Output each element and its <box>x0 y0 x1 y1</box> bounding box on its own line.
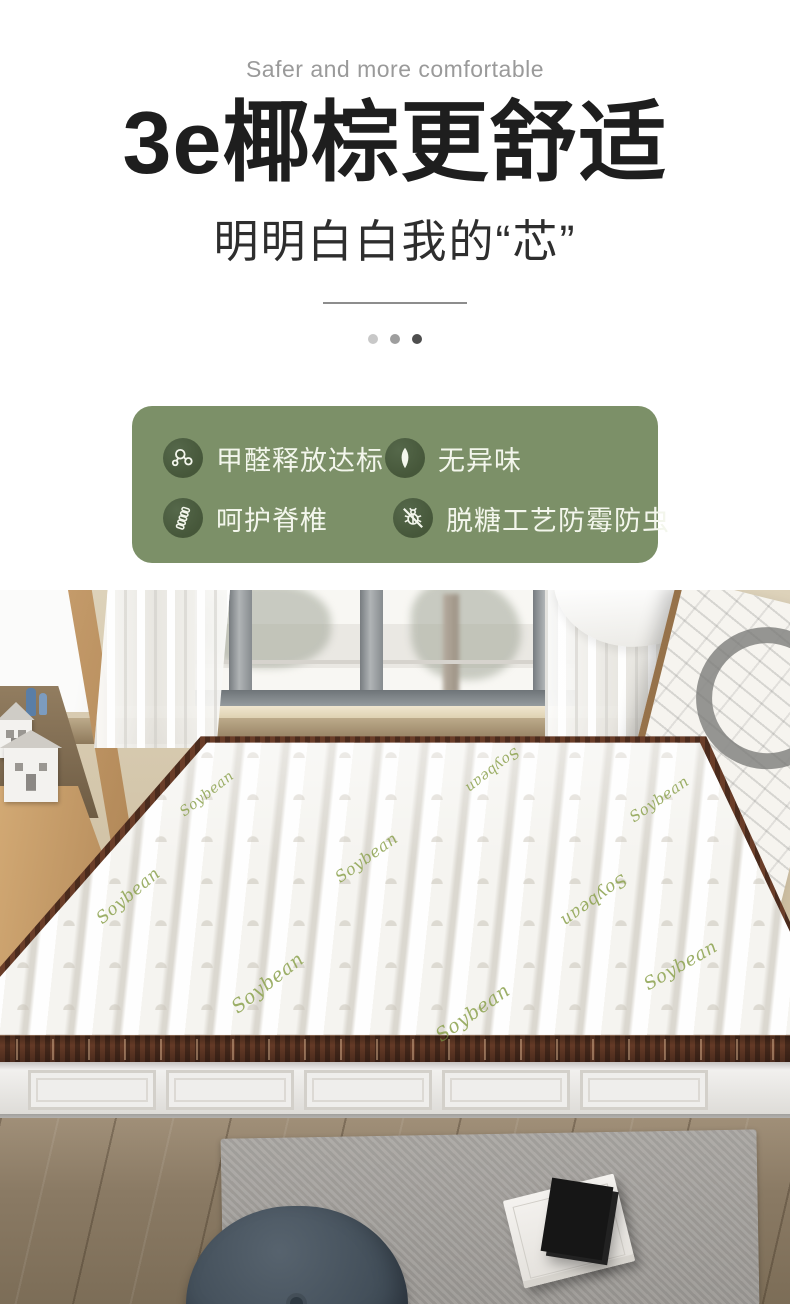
bed-storage-base <box>0 1062 790 1118</box>
feature-label: 无异味 <box>438 439 522 478</box>
window <box>195 590 575 708</box>
subtitle-english: Safer and more comfortable <box>0 0 790 83</box>
dot-1 <box>368 334 378 344</box>
window-frame-bar <box>360 590 383 692</box>
decor-bottle <box>26 688 36 716</box>
hero-section: Safer and more comfortable 3e椰棕更舒适 明明白白我… <box>0 0 790 344</box>
feature-label: 甲醛释放达标 <box>216 439 384 478</box>
product-detail-page: Safer and more comfortable 3e椰棕更舒适 明明白白我… <box>0 0 790 1304</box>
subtitle-chinese: 明明白白我的“芯” <box>0 205 790 270</box>
feature-item-spine-care: 呵护脊椎 <box>163 498 328 538</box>
tree-foliage <box>411 590 521 680</box>
no-insect-icon <box>393 498 433 538</box>
pagination-dots <box>0 334 790 344</box>
mattress-side-band <box>0 1035 790 1064</box>
spine-icon <box>163 498 203 538</box>
miniature-house <box>4 746 58 802</box>
tree-trunk <box>443 594 459 694</box>
page-title: 3e椰棕更舒适 <box>0 97 790 189</box>
curtain-left <box>94 590 230 748</box>
feature-label: 脱糖工艺防霉防虫 <box>446 499 670 538</box>
drawer-panel <box>442 1070 570 1110</box>
balcony-rail <box>195 660 575 664</box>
feature-label: 呵护脊椎 <box>216 499 328 538</box>
drawer-panel <box>580 1070 708 1110</box>
divider-line <box>323 302 467 304</box>
leaf-icon <box>385 438 425 478</box>
decor-bottle <box>39 693 47 715</box>
drawer-panel <box>304 1070 432 1110</box>
feature-item-anti-mold-insect: 脱糖工艺防霉防虫 <box>393 498 670 538</box>
product-photo: Soybean Soybean Soybean Soybean Soybean … <box>0 590 790 1304</box>
molecule-icon <box>163 438 203 478</box>
dot-3 <box>412 334 422 344</box>
feature-item-formaldehyde: 甲醛释放达标 <box>163 438 384 478</box>
drawer-panel <box>28 1070 156 1110</box>
drawer-panel <box>166 1070 294 1110</box>
window-frame-bar <box>229 590 252 692</box>
dot-2 <box>390 334 400 344</box>
feature-item-no-odor: 无异味 <box>385 438 522 478</box>
rubiks-cube <box>541 1178 614 1261</box>
feature-card: 甲醛释放达标 无异味 <box>132 406 658 563</box>
